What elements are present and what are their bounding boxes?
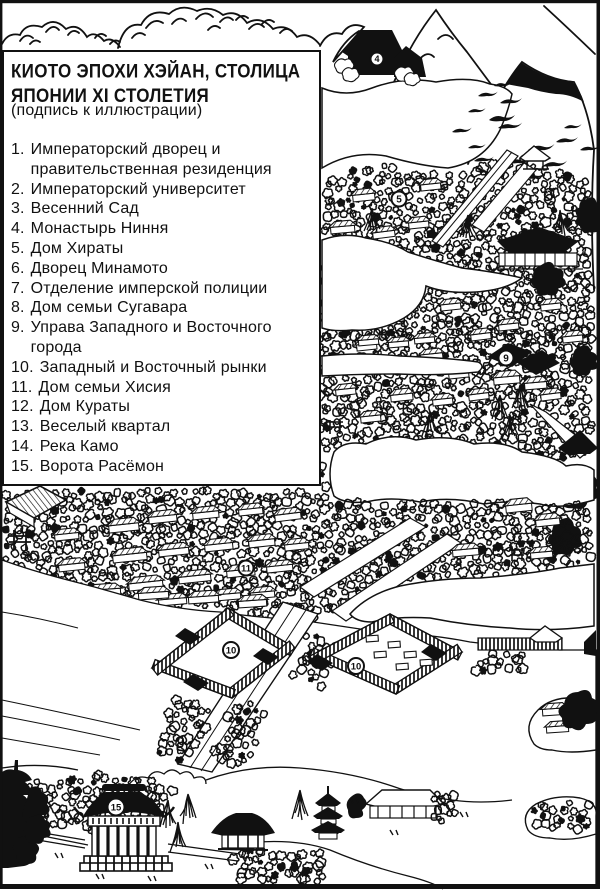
svg-text:10: 10 <box>226 645 237 656</box>
svg-text:10: 10 <box>351 661 362 672</box>
svg-text:9: 9 <box>503 354 509 365</box>
svg-text:4: 4 <box>374 54 379 64</box>
svg-text:15: 15 <box>111 802 122 813</box>
svg-text:11: 11 <box>241 563 252 574</box>
svg-text:5: 5 <box>396 195 402 206</box>
